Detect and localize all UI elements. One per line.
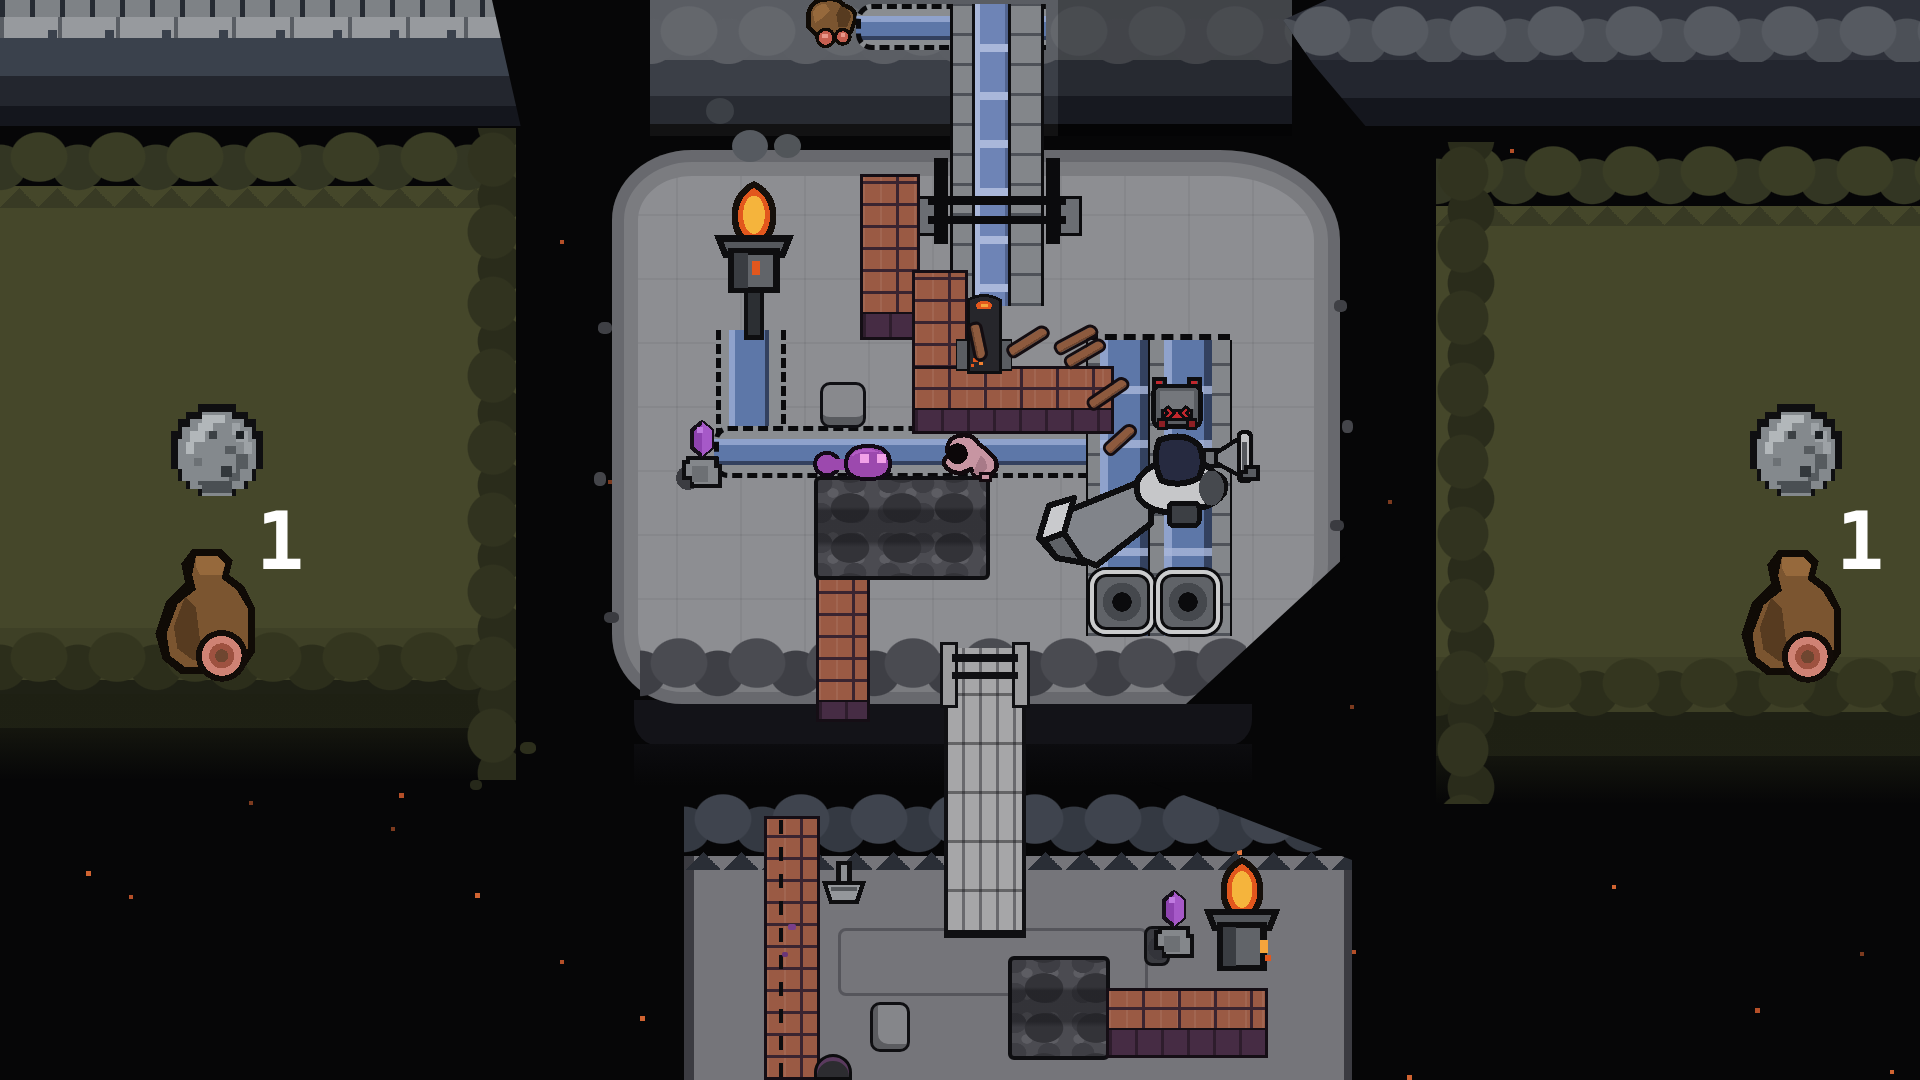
ember-particle (1350, 705, 1354, 709)
ember-particle (475, 893, 480, 898)
grass-bottom-fade (0, 694, 516, 780)
grass-stone-shadow (0, 188, 516, 210)
ember-particle (1407, 1075, 1412, 1080)
ember-particle (1612, 885, 1616, 889)
moss-patch-island (814, 476, 990, 580)
cliff-brick-posts (0, 30, 524, 39)
rubble (598, 322, 612, 334)
stone-pot (820, 382, 866, 428)
purple-speck (788, 924, 796, 930)
grass-stone-row (0, 128, 516, 196)
grub-icon (938, 432, 1004, 487)
ember-particle (399, 793, 404, 798)
smoke-puff (706, 98, 734, 124)
rat-robot-icon (1148, 376, 1206, 434)
game-viewport[interactable]: 1 1 (0, 0, 1920, 1080)
ember-particle (129, 895, 133, 899)
drain-wheel-right (1156, 570, 1220, 634)
rubble (1334, 300, 1347, 312)
grass-left-edge (1436, 142, 1500, 804)
stone-orb-right-icon (1742, 400, 1850, 508)
ember-particle (560, 240, 564, 244)
ember-particle (1890, 1070, 1894, 1074)
torch-island-icon (706, 178, 802, 344)
purple-slime-icon (812, 432, 900, 486)
smoke-puff (732, 130, 768, 162)
loot-bag-right-icon (1734, 545, 1852, 695)
gate-bar-top (928, 196, 1066, 205)
torch-bottom-icon (1196, 854, 1288, 980)
rubble (1330, 520, 1344, 531)
bridge-plank-seams (948, 648, 1022, 938)
cliff-brick-band (0, 0, 524, 17)
stone-orb-left-icon (163, 400, 271, 508)
ember-particle (1352, 950, 1356, 954)
ember-particle (249, 801, 253, 805)
loot-bag-left-icon (148, 542, 266, 696)
ember-particle (560, 960, 564, 964)
grass-right-edge (448, 128, 516, 780)
rubble (520, 742, 536, 754)
bridge-end-cap (948, 930, 1022, 938)
hooded-character-icon (1034, 428, 1274, 578)
bridge-rail-top (952, 654, 1018, 662)
supply-bag-icon (800, 0, 864, 52)
brick-wall-bottom-vertical (764, 816, 820, 1080)
rubble (1342, 420, 1353, 433)
drain-wheel-left (1090, 570, 1154, 634)
aqueduct-vertical (950, 4, 1044, 306)
cliff-stones (1283, 2, 1920, 62)
goblet-icon (816, 858, 872, 916)
purple-speck (782, 952, 788, 957)
brick-wall-horizontal (912, 366, 1114, 412)
gate-bar-bottom (928, 216, 1066, 224)
island-under-fade (634, 744, 1252, 786)
ember-particle (391, 827, 395, 831)
rubble (470, 780, 482, 790)
brick-dashed-seam (779, 819, 783, 1077)
brick-column-a (860, 174, 920, 316)
grass-stone-shadow (1436, 206, 1920, 228)
platform-top-left (0, 0, 524, 132)
grass-bottom-fade (1436, 720, 1920, 804)
ember-particle (640, 1016, 645, 1021)
cliff-shade (1058, 0, 1292, 136)
ember-particle (86, 871, 91, 876)
bridge-rail-bottom (952, 672, 1018, 679)
rubble (594, 472, 606, 486)
moss-patch-bottom (1008, 956, 1110, 1060)
brick-column-c-base (816, 700, 870, 722)
grass-stone-row (1436, 142, 1920, 212)
rock (870, 1002, 910, 1052)
smoke-puff (774, 134, 801, 158)
aqueduct-stone-ticks (1011, 4, 1041, 306)
platform-top-right (1283, 0, 1920, 142)
aqueduct-water-caps (975, 4, 1008, 306)
rubble (604, 612, 619, 623)
crystal-shrine-island-icon (676, 418, 728, 494)
ember-particle (1755, 1008, 1760, 1013)
brick-wall-bottom-base (1106, 1028, 1268, 1058)
aqueduct-stone-ticks (953, 4, 972, 306)
brick-wall-bottom-horizontal (1106, 988, 1268, 1032)
brick-column-a-base (860, 312, 920, 340)
ember-particle (1860, 952, 1864, 956)
ember-particle (1388, 500, 1392, 504)
crystal-shrine-bottom-icon (1148, 886, 1200, 966)
